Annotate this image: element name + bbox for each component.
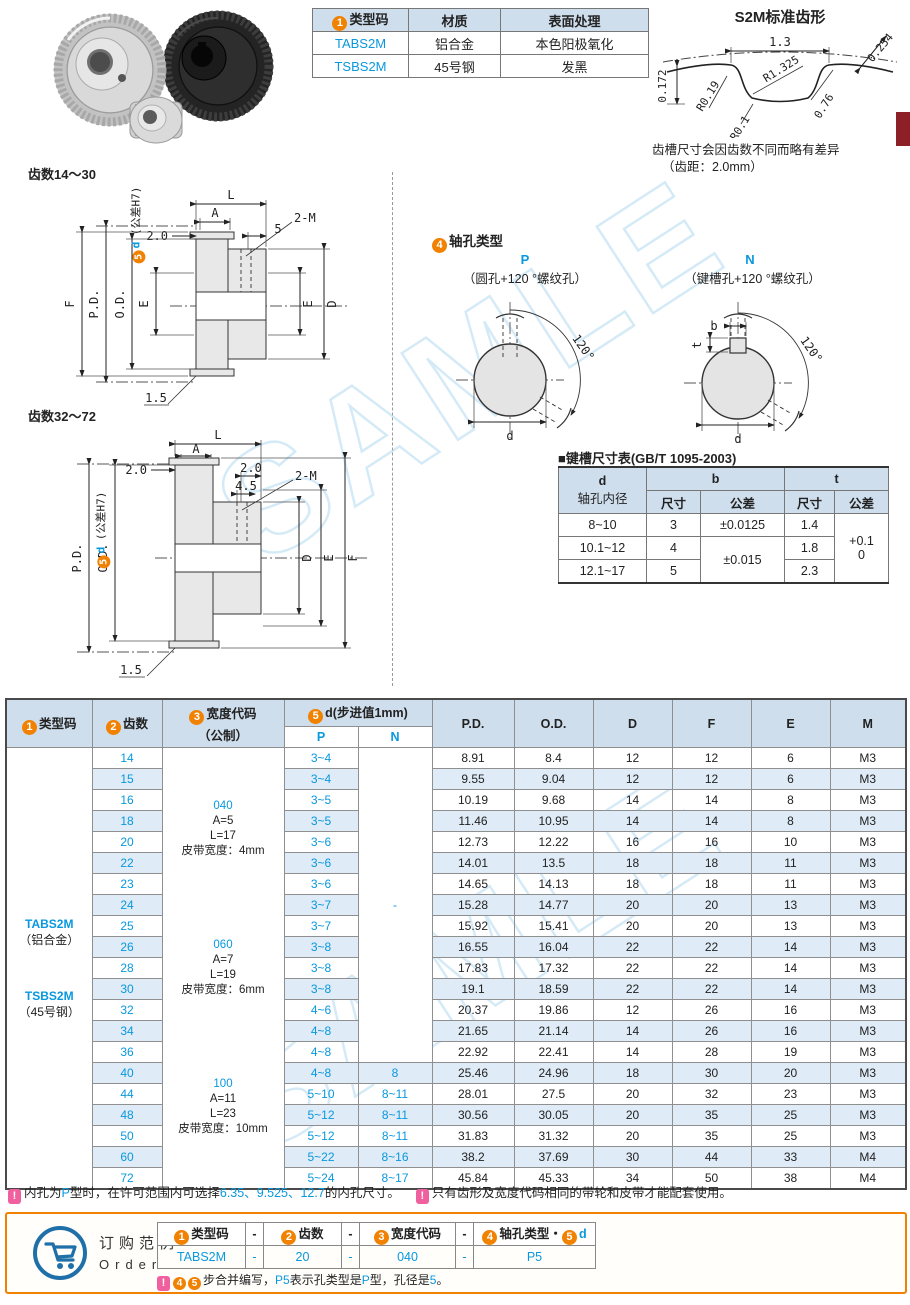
dim-a: A — [211, 206, 219, 220]
pd-cell: 16.55 — [432, 937, 514, 958]
p-range-cell: 4~8 — [284, 1063, 358, 1084]
od-cell: 9.68 — [514, 790, 593, 811]
d-cell: 14 — [593, 1021, 672, 1042]
e-cell: 8 — [751, 790, 830, 811]
p-range-cell: 4~8 — [284, 1042, 358, 1063]
section-divider — [392, 172, 393, 686]
pulley-row: TABS2M（铝合金） TSBS2M（45号钢） 14040A=5L=17皮带宽… — [6, 748, 906, 769]
dim-a: A — [192, 442, 200, 456]
p-range-cell: 3~8 — [284, 979, 358, 1000]
teeth-cell: 18 — [92, 811, 162, 832]
pulley-row: 243~715.2814.77202013M3 — [6, 895, 906, 916]
circled-1-icon: 1 — [332, 16, 347, 31]
dim-pitch: 1.3 — [769, 35, 791, 49]
pulley-row: 203~612.7312.22161610M3 — [6, 832, 906, 853]
m-cell: M3 — [830, 790, 906, 811]
m-cell: M3 — [830, 853, 906, 874]
d-cell: 20 — [593, 895, 672, 916]
f-cell: 12 — [672, 748, 751, 769]
od-cell: 21.14 — [514, 1021, 593, 1042]
f-cell: 20 — [672, 895, 751, 916]
spec-header-type: 1类型码 — [313, 9, 409, 32]
p-range-cell: 3~8 — [284, 958, 358, 979]
od-cell: 30.05 — [514, 1105, 593, 1126]
n-range-merged-cell: - — [358, 748, 432, 1063]
pulley-row: 344~821.6521.14142616M3 — [6, 1021, 906, 1042]
dim-e-left: E — [137, 300, 151, 307]
pd-cell: 10.19 — [432, 790, 514, 811]
order-code-table: 1类型码 - 2齿数 - 3宽度代码 - 4轴孔类型・5d TABS2M - 2… — [157, 1222, 596, 1269]
tooth-profile-note: 齿槽尺寸会因齿数不同而略有差异 （齿距：2.0mm） — [652, 142, 908, 176]
d-cell: 20 — [593, 1084, 672, 1105]
keyway-row: 8~10 3 ±0.0125 1.4 +0.1 0 — [559, 514, 889, 537]
header-teeth: 2齿数 — [92, 699, 162, 748]
p-range-cell: 3~5 — [284, 790, 358, 811]
dim-right: 5 — [274, 222, 281, 236]
keyway-header-t: t — [785, 467, 889, 491]
pd-cell: 14.65 — [432, 874, 514, 895]
p-range-cell: 4~6 — [284, 1000, 358, 1021]
order-value-type: TABS2M — [158, 1246, 246, 1269]
keyway-b-tol: ±0.015 — [701, 537, 785, 584]
dim-right2: 4.5 — [235, 479, 257, 493]
note-segment: 6.35、9.525、12.7 — [220, 1186, 325, 1200]
e-cell: 16 — [751, 1000, 830, 1021]
circled-2-icon: 2 — [281, 1230, 296, 1245]
pd-cell: 8.91 — [432, 748, 514, 769]
keyway-d: 12.1~17 — [559, 560, 647, 584]
e-cell: 13 — [751, 895, 830, 916]
m-cell: M3 — [830, 832, 906, 853]
spec-row: TSBS2M 45号钢 发黑 — [313, 55, 649, 78]
note-segment: 内孔为 — [24, 1186, 62, 1200]
exclamation-icon: ! — [157, 1276, 170, 1291]
dim-r-main: R1.325 — [761, 53, 802, 85]
keyway-table: d 轴孔内径 b t 尺寸 公差 尺寸 公差 8~10 3 ±0.0125 1.… — [558, 466, 889, 584]
pd-cell: 28.01 — [432, 1084, 514, 1105]
circled-4-icon: 4 — [482, 1230, 497, 1245]
d-cell: 20 — [593, 916, 672, 937]
f-cell: 18 — [672, 853, 751, 874]
od-cell: 15.41 — [514, 916, 593, 937]
e-cell: 14 — [751, 958, 830, 979]
teeth-cell: 30 — [92, 979, 162, 1000]
dim-flange: 1.5 — [145, 391, 167, 405]
teeth-cell: 34 — [92, 1021, 162, 1042]
f-cell: 14 — [672, 811, 751, 832]
circled-1-icon: 1 — [22, 720, 37, 735]
note-segment: 的内孔尺寸。 — [325, 1186, 400, 1200]
f-cell: 26 — [672, 1021, 751, 1042]
hole-type-p-code: P — [440, 252, 610, 267]
teeth-cell: 44 — [92, 1084, 162, 1105]
pulley-row: 303~819.118.59222214M3 — [6, 979, 906, 1000]
m-cell: M3 — [830, 1105, 906, 1126]
order-header-width: 3宽度代码 — [360, 1223, 456, 1246]
spec-finish: 发黑 — [501, 55, 649, 78]
m-cell: M3 — [830, 811, 906, 832]
header-bore: 5d(步进值1mm) — [284, 699, 432, 727]
p-range-cell: 3~6 — [284, 853, 358, 874]
pulley-row: 404~8825.4624.96183020M3 — [6, 1063, 906, 1084]
pd-cell: 15.28 — [432, 895, 514, 916]
dim-d: D — [300, 554, 314, 561]
m-cell: M3 — [830, 769, 906, 790]
teeth-cell: 20 — [92, 832, 162, 853]
order-dash: - — [456, 1223, 474, 1246]
order-header-row: 1类型码 - 2齿数 - 3宽度代码 - 4轴孔类型・5d — [158, 1223, 596, 1246]
teeth-cell: 14 — [92, 748, 162, 769]
header-type-code: 1类型码 — [6, 699, 92, 748]
dim-screw: 2-M — [295, 469, 317, 483]
order-example-box: 订购范例 Order 1类型码 - 2齿数 - 3宽度代码 - 4轴孔类型・5d… — [5, 1212, 907, 1294]
d-cell: 20 — [593, 1126, 672, 1147]
header-od: O.D. — [514, 699, 593, 748]
od-cell: 8.4 — [514, 748, 593, 769]
pd-cell: 25.46 — [432, 1063, 514, 1084]
f-cell: 35 — [672, 1126, 751, 1147]
p-range-cell: 3~8 — [284, 937, 358, 958]
f-cell: 28 — [672, 1042, 751, 1063]
d-cell: 12 — [593, 748, 672, 769]
dim-b: b — [710, 319, 717, 333]
teeth-cell: 24 — [92, 895, 162, 916]
note-segment: P5 — [275, 1273, 290, 1287]
pulley-row: 505~128~1131.8331.32203525M3 — [6, 1126, 906, 1147]
pd-cell: 17.83 — [432, 958, 514, 979]
dim-d: d — [734, 432, 741, 446]
n-range-cell: 8~16 — [358, 1147, 432, 1168]
pd-cell: 14.01 — [432, 853, 514, 874]
order-value-row: TABS2M - 20 - 040 - P5 — [158, 1246, 596, 1269]
shaft-hole-heading: 4轴孔类型 — [432, 230, 503, 253]
m-cell: M3 — [830, 1063, 906, 1084]
e-cell: 25 — [751, 1105, 830, 1126]
teeth-cell: 26 — [92, 937, 162, 958]
od-cell: 19.86 — [514, 1000, 593, 1021]
teeth-cell: 25 — [92, 916, 162, 937]
p-range-cell: 3~7 — [284, 895, 358, 916]
silver-pulley-small — [130, 97, 182, 143]
pd-cell: 19.1 — [432, 979, 514, 1000]
n-range-cell: 8 — [358, 1063, 432, 1084]
main-header-row1: 1类型码 2齿数 3宽度代码 （公制） 5d(步进值1mm) P.D. O.D.… — [6, 699, 906, 727]
e-cell: 20 — [751, 1063, 830, 1084]
drawing-large: 2-M L A 2.0 2.0 4.5 P.D. O.D. D E F 1.5 — [15, 418, 385, 688]
teeth-cell: 36 — [92, 1042, 162, 1063]
d-cell: 18 — [593, 1063, 672, 1084]
keyway-table-title: ■键槽尺寸表(GB/T 1095-2003) — [558, 448, 736, 467]
dim-flange: 1.5 — [120, 663, 142, 677]
keyway-header-t-size: 尺寸 — [785, 491, 835, 514]
teeth-cell: 48 — [92, 1105, 162, 1126]
pd-cell: 31.83 — [432, 1126, 514, 1147]
keyway-header-row1: d 轴孔内径 b t — [559, 467, 889, 491]
od-cell: 31.32 — [514, 1126, 593, 1147]
e-cell: 33 — [751, 1147, 830, 1168]
keyway-header-d: d 轴孔内径 — [559, 467, 647, 514]
e-cell: 11 — [751, 874, 830, 895]
pulley-row: 324~620.3719.86122616M3 — [6, 1000, 906, 1021]
teeth-cell: 50 — [92, 1126, 162, 1147]
d-cell: 16 — [593, 832, 672, 853]
e-cell: 14 — [751, 979, 830, 1000]
header-m: M — [830, 699, 906, 748]
p-range-cell: 5~22 — [284, 1147, 358, 1168]
f-cell: 44 — [672, 1147, 751, 1168]
m-cell: M4 — [830, 1147, 906, 1168]
footnote-1: 内孔为P型时，在许可范围内可选择6.35、9.525、12.7的内孔尺寸。 — [24, 1186, 400, 1200]
circled-5-icon: 5 — [562, 1230, 577, 1245]
dim-r-bottom: R0.1 — [727, 113, 752, 138]
header-width-code: 3宽度代码 （公制） — [162, 699, 284, 748]
order-dash: - — [342, 1246, 360, 1269]
od-cell: 9.04 — [514, 769, 593, 790]
keyway-t: 1.4 — [785, 514, 835, 537]
m-cell: M3 — [830, 1042, 906, 1063]
pd-cell: 20.37 — [432, 1000, 514, 1021]
hole-type-n-code: N — [650, 252, 850, 267]
pd-cell: 11.46 — [432, 811, 514, 832]
e-cell: 14 — [751, 937, 830, 958]
dim-od: O.D. — [113, 290, 127, 319]
p-range-cell: 5~12 — [284, 1105, 358, 1126]
keyway-d: 8~10 — [559, 514, 647, 537]
hole-type-p-desc: （圆孔+120 °螺纹孔） — [425, 268, 625, 287]
pulley-row: 283~817.8317.32222214M3 — [6, 958, 906, 979]
header-pd: P.D. — [432, 699, 514, 748]
f-cell: 35 — [672, 1105, 751, 1126]
circled-3-icon: 3 — [374, 1230, 389, 1245]
e-cell: 6 — [751, 769, 830, 790]
pulley-row: 445~108~1128.0127.5203223M3 — [6, 1084, 906, 1105]
note-segment: 步合并编写， — [203, 1273, 275, 1287]
spec-header-material: 材质 — [409, 9, 501, 32]
d-cell: 18 — [593, 853, 672, 874]
keyway-t: 2.3 — [785, 560, 835, 584]
hole-type-n-diagram: b t 120° d — [650, 288, 850, 446]
order-note: !45步合并编写，P5表示孔类型是P型，孔径是5。 — [157, 1271, 857, 1291]
pulley-row: 605~228~1638.237.69304433M4 — [6, 1147, 906, 1168]
f-cell: 22 — [672, 937, 751, 958]
dim-f: F — [63, 300, 77, 307]
type-code-cell: TABS2M（铝合金） TSBS2M（45号钢） — [6, 748, 92, 1190]
header-p: P — [284, 727, 358, 748]
dim-flank: 0.76 — [811, 91, 836, 120]
d-cell: 22 — [593, 979, 672, 1000]
p-range-cell: 5~12 — [284, 1126, 358, 1147]
bore-dim-label-small: 5d (公差H7) — [127, 187, 145, 264]
f-cell: 20 — [672, 916, 751, 937]
circled-5-icon: 5 — [188, 1277, 201, 1290]
keyway-header-t-tol: 公差 — [835, 491, 889, 514]
m-cell: M3 — [830, 895, 906, 916]
dim-r-left: R0.19 — [694, 79, 723, 114]
keyway-t: 1.8 — [785, 537, 835, 560]
od-cell: 10.95 — [514, 811, 593, 832]
pulley-row: 163~510.199.6814148M3 — [6, 790, 906, 811]
f-cell: 18 — [672, 874, 751, 895]
d-cell: 14 — [593, 811, 672, 832]
circled-5-icon: 5 — [97, 555, 110, 568]
pulley-row: 253~715.9215.41202013M3 — [6, 916, 906, 937]
order-header-teeth: 2齿数 — [264, 1223, 342, 1246]
order-note-text: 步合并编写，P5表示孔类型是P型，孔径是5。 — [203, 1273, 448, 1287]
dim-t: t — [690, 341, 704, 348]
exclamation-icon: ! — [8, 1189, 21, 1204]
od-cell: 16.04 — [514, 937, 593, 958]
e-cell: 10 — [751, 832, 830, 853]
od-cell: 24.96 — [514, 1063, 593, 1084]
header-f: F — [672, 699, 751, 748]
pulley-row: 263~816.5516.04222214M3 — [6, 937, 906, 958]
e-cell: 11 — [751, 853, 830, 874]
header-d: D — [593, 699, 672, 748]
m-cell: M3 — [830, 1021, 906, 1042]
p-range-cell: 3~5 — [284, 811, 358, 832]
m-cell: M3 — [830, 979, 906, 1000]
spec-code: TABS2M — [313, 32, 409, 55]
circled-3-icon: 3 — [189, 710, 204, 725]
m-cell: M3 — [830, 874, 906, 895]
spec-material: 铝合金 — [409, 32, 501, 55]
e-cell: 25 — [751, 1126, 830, 1147]
f-cell: 22 — [672, 979, 751, 1000]
note-segment: 型时，在许可范围内可选择 — [70, 1186, 220, 1200]
od-cell: 22.41 — [514, 1042, 593, 1063]
hole-type-n-desc: （键槽孔+120 °螺纹孔） — [645, 268, 860, 287]
order-value-teeth: 20 — [264, 1246, 342, 1269]
f-cell: 26 — [672, 1000, 751, 1021]
footnotes: !内孔为P型时，在许可范围内可选择6.35、9.525、12.7的内孔尺寸。!只… — [8, 1182, 908, 1204]
header-e: E — [751, 699, 830, 748]
tooth-profile-title: S2M标准齿形 — [655, 6, 905, 27]
p-range-cell: 3~4 — [284, 748, 358, 769]
dim-l: L — [214, 428, 221, 442]
n-range-cell: 8~11 — [358, 1105, 432, 1126]
keyway-header-b-size: 尺寸 — [647, 491, 701, 514]
cart-icon — [31, 1224, 89, 1282]
n-range-cell: 8~11 — [358, 1126, 432, 1147]
pulley-row: 233~614.6514.13181811M3 — [6, 874, 906, 895]
p-range-cell: 3~6 — [284, 874, 358, 895]
f-cell: 30 — [672, 1063, 751, 1084]
teeth-cell: 32 — [92, 1000, 162, 1021]
e-cell: 6 — [751, 748, 830, 769]
page-edge-tab — [896, 112, 910, 146]
keyway-header-b-tol: 公差 — [701, 491, 785, 514]
dim-angle: 120° — [569, 332, 597, 364]
pulley-row: 223~614.0113.5181811M3 — [6, 853, 906, 874]
dim-d: D — [325, 300, 339, 307]
spec-table: 1类型码 材质 表面处理 TABS2M 铝合金 本色阳极氧化 TSBS2M 45… — [312, 8, 649, 78]
order-dash: - — [246, 1246, 264, 1269]
dim-screw: 2-M — [294, 211, 316, 225]
spec-finish: 本色阳极氧化 — [501, 32, 649, 55]
keyway-t-tol: +0.1 0 — [835, 514, 889, 584]
width-code-block: 060A=7L=19皮带宽度：6mm — [163, 938, 284, 998]
pd-cell: 21.65 — [432, 1021, 514, 1042]
footnote-2: 只有齿形及宽度代码相同的带轮和皮带才能配套使用。 — [432, 1186, 732, 1200]
d-cell: 12 — [593, 1000, 672, 1021]
width-code-block: 040A=5L=17皮带宽度：4mm — [163, 799, 284, 859]
spec-header-finish: 表面处理 — [501, 9, 649, 32]
circled-4-icon: 4 — [432, 238, 447, 253]
p-range-cell: 3~4 — [284, 769, 358, 790]
od-cell: 12.22 — [514, 832, 593, 853]
drawing-small: 2-M L A 2.0 5 F P.D. O.D. E E D 1.5 — [20, 176, 380, 412]
order-dash: - — [246, 1223, 264, 1246]
od-cell: 27.5 — [514, 1084, 593, 1105]
dim-left: 2.0 — [146, 229, 168, 243]
spec-code: TSBS2M — [313, 55, 409, 78]
dim-angle: 120° — [797, 334, 825, 366]
pd-cell: 12.73 — [432, 832, 514, 853]
note-segment: 只有齿形及宽度代码相同的带轮和皮带才能配套使用。 — [432, 1186, 732, 1200]
d-cell: 18 — [593, 874, 672, 895]
e-cell: 16 — [751, 1021, 830, 1042]
p-range-cell: 3~7 — [284, 916, 358, 937]
note-segment: 。 — [436, 1273, 448, 1287]
pulley-row: 364~822.9222.41142819M3 — [6, 1042, 906, 1063]
m-cell: M3 — [830, 1126, 906, 1147]
e-cell: 19 — [751, 1042, 830, 1063]
order-value-hole: P5 — [474, 1246, 596, 1269]
order-header-type: 1类型码 — [158, 1223, 246, 1246]
teeth-cell: 23 — [92, 874, 162, 895]
exclamation-icon: ! — [416, 1189, 429, 1204]
d-cell: 22 — [593, 958, 672, 979]
dim-height: 0.172 — [656, 69, 669, 102]
note-segment: P — [362, 1273, 370, 1287]
m-cell: M3 — [830, 937, 906, 958]
p-range-cell: 5~10 — [284, 1084, 358, 1105]
circled-5-icon: 5 — [308, 709, 323, 724]
order-dash: - — [456, 1246, 474, 1269]
spec-material: 45号钢 — [409, 55, 501, 78]
e-cell: 8 — [751, 811, 830, 832]
order-dash: - — [342, 1223, 360, 1246]
pulley-row: 485~128~1130.5630.05203525M3 — [6, 1105, 906, 1126]
order-value-width: 040 — [360, 1246, 456, 1269]
teeth-cell: 28 — [92, 958, 162, 979]
d-cell: 14 — [593, 790, 672, 811]
spec-header-row: 1类型码 材质 表面处理 — [313, 9, 649, 32]
m-cell: M3 — [830, 1084, 906, 1105]
pd-cell: 15.92 — [432, 916, 514, 937]
teeth-cell: 60 — [92, 1147, 162, 1168]
width-code-block: 100A=11L=23皮带宽度：10mm — [163, 1077, 284, 1137]
tooth-profile-diagram: 1.3 0.254 R1.325 R0.19 0.76 0.172 R0.1 — [655, 26, 905, 138]
od-cell: 13.5 — [514, 853, 593, 874]
order-header-hole: 4轴孔类型・5d — [474, 1223, 596, 1246]
pd-cell: 30.56 — [432, 1105, 514, 1126]
note-segment: 型，孔径是 — [370, 1273, 430, 1287]
pulley-row: 183~511.4610.9514148M3 — [6, 811, 906, 832]
header-n: N — [358, 727, 432, 748]
keyway-b: 3 — [647, 514, 701, 537]
m-cell: M3 — [830, 916, 906, 937]
dim-pd: P.D. — [87, 290, 101, 319]
m-cell: M3 — [830, 958, 906, 979]
od-cell: 17.32 — [514, 958, 593, 979]
d-cell: 30 — [593, 1147, 672, 1168]
product-photo — [18, 6, 308, 161]
f-cell: 22 — [672, 958, 751, 979]
keyway-d: 10.1~12 — [559, 537, 647, 560]
circled-5-icon: 5 — [132, 250, 145, 263]
od-cell: 14.13 — [514, 874, 593, 895]
